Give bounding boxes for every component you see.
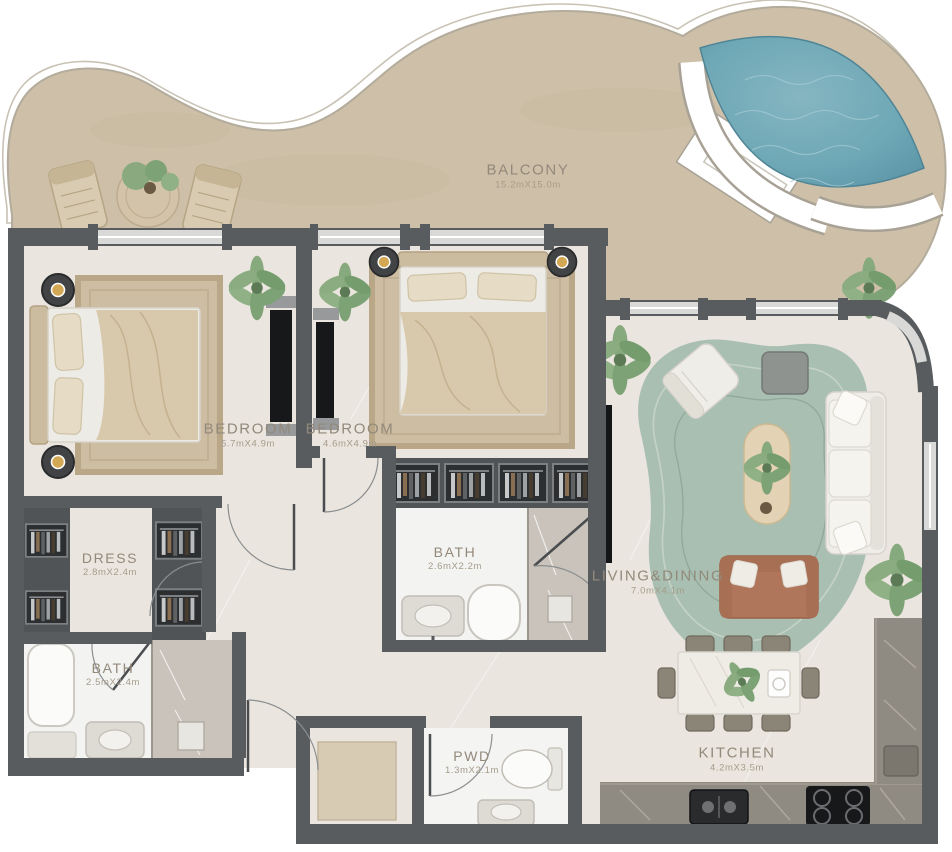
dining-chair-icon (762, 714, 790, 731)
dining-chair-icon (724, 636, 752, 653)
sofa-icon (826, 389, 886, 556)
loveseat-icon (720, 556, 818, 618)
bedroom2-wardrobe (386, 458, 606, 508)
floor-plan: BALCONY 15.2mX15.0m BEDROOM 5.7mX4.9m BE… (0, 0, 952, 852)
dining-chair-icon (762, 636, 790, 653)
toilet-icon (502, 748, 562, 790)
bath-mat (28, 732, 76, 758)
dining-chair-icon (686, 636, 714, 653)
bath1-room (24, 640, 232, 760)
dining-chair-icon (686, 714, 714, 731)
pwd-room (424, 728, 568, 832)
cooktop-icon (806, 786, 870, 826)
nightstand-lamp-icon (370, 248, 399, 277)
shower-drain-icon (178, 722, 204, 750)
dining-chair-icon (724, 714, 752, 731)
bedroom1-tv-unit (266, 296, 296, 436)
bathtub-icon (28, 644, 74, 726)
table-tray (768, 670, 790, 697)
bedroom1-bed-icon (30, 306, 200, 444)
bath2-room (394, 505, 592, 645)
storage-closet (318, 742, 396, 820)
floor-plan-canvas (0, 0, 952, 852)
ottoman-icon (762, 352, 808, 394)
kitchen-sink-icon (690, 790, 748, 824)
nightstand-lamp-icon (42, 446, 74, 478)
bathtub-icon (468, 585, 520, 641)
nightstand-lamp-icon (548, 248, 577, 277)
dining-chair-icon (802, 668, 819, 698)
shower-drain-icon (548, 596, 572, 622)
kitchen-counter-right (874, 618, 926, 784)
bedroom2-bed-icon (398, 252, 548, 415)
coffee-table-icon (741, 424, 793, 524)
kitchen-counter-bottom (600, 782, 926, 826)
dining-chair-icon (658, 668, 675, 698)
nightstand-lamp-icon (42, 274, 74, 306)
sink-icon (86, 722, 144, 758)
